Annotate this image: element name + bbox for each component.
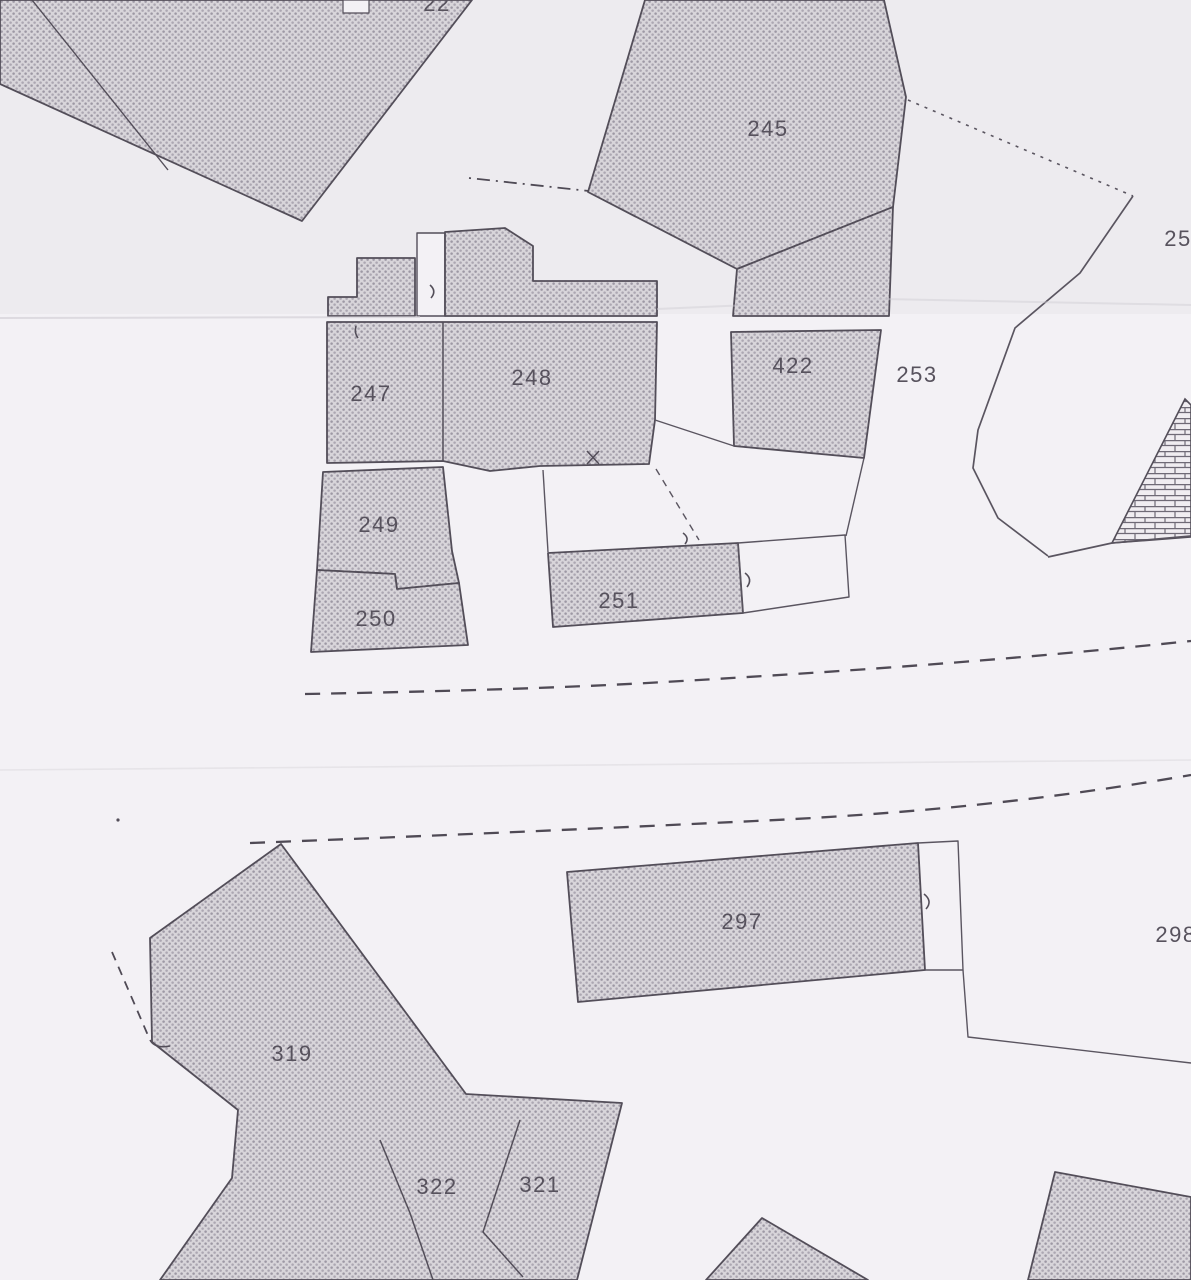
parcel-label-247: 247 [350,381,391,406]
cadastral-map-canvas: 22 245 247 248 422 253 249 250 251 25 29… [0,0,1191,1280]
parcel-label-245: 245 [747,116,788,141]
parcel-label-251: 251 [598,588,639,613]
parcel-label-297: 297 [721,909,762,934]
building-white-notch [417,233,445,316]
parcel-label-248: 248 [511,365,552,390]
parcel-label-321: 321 [519,1172,560,1197]
seam-line-left [0,317,420,318]
parcel-label-298: 298 [1155,922,1191,947]
scanned-map-page: 22 245 247 248 422 253 249 250 251 25 29… [0,0,1191,1280]
parcel-label-250: 250 [355,606,396,631]
parcel-422-shape [731,330,881,458]
dot-speck [116,818,119,821]
parcel-label-249: 249 [358,512,399,537]
parcel-label-25-cut: 25 [1164,226,1191,251]
parcel-label-253: 253 [896,362,937,387]
parcel-label-322: 322 [416,1174,457,1199]
parcel-251-shape [548,543,743,627]
parcel-label-319: 319 [271,1041,312,1066]
parcel-22-top-notch [343,0,369,13]
parcel-label-422: 422 [772,353,813,378]
parcel-label-22: 22 [423,0,450,16]
